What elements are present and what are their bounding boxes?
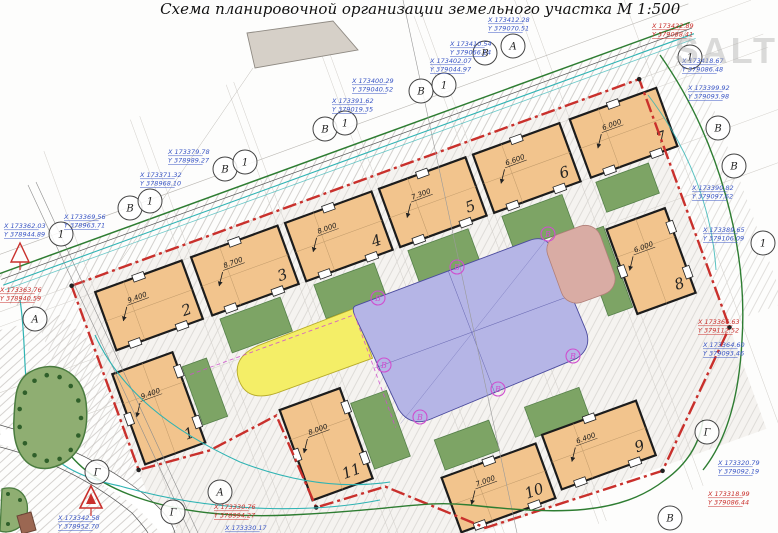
svg-text:Y 378994.27: Y 378994.27 <box>214 512 256 520</box>
svg-text:А: А <box>508 42 517 53</box>
svg-text:А: А <box>215 488 224 499</box>
tree-icon <box>6 522 10 526</box>
svg-text:В: В <box>416 413 423 422</box>
coordinate-label: X 173366.63Y 379112.52 <box>697 318 740 335</box>
svg-text:X 173400.29: X 173400.29 <box>351 77 394 85</box>
axis-marker: В <box>658 506 682 530</box>
axis-marker: Г <box>85 460 109 484</box>
tree-icon <box>57 375 62 380</box>
axis-marker: А <box>23 307 47 331</box>
svg-text:Y 379066.14: Y 379066.14 <box>450 49 491 57</box>
svg-text:В: В <box>416 87 424 98</box>
svg-text:Y 378944.89: Y 378944.89 <box>4 231 45 239</box>
coordinate-label: X 173402.07Y 379044.97 <box>429 57 473 74</box>
tree-icon <box>76 433 81 438</box>
axis-marker: 1 <box>233 150 257 174</box>
svg-text:Y 379112.52: Y 379112.52 <box>698 327 739 335</box>
svg-text:Y 379044.97: Y 379044.97 <box>430 66 472 74</box>
svg-text:В: В <box>374 294 381 303</box>
coordinate-label: X 173318.99Y 379086.44 <box>707 490 750 507</box>
axis-marker: 1 <box>333 111 357 135</box>
svg-text:В: В <box>125 204 133 215</box>
tree-icon <box>23 390 28 395</box>
svg-text:В: В <box>729 162 737 173</box>
coordinate-label: X 173364.60Y 379093.46 <box>702 341 745 358</box>
coordinate-label: X 173320.79Y 379092.19 <box>717 459 760 476</box>
coordinate-label: X 173379.78Y 378989.27 <box>167 148 210 165</box>
svg-text:Y 378963.71: Y 378963.71 <box>64 222 105 230</box>
tree-icon <box>23 441 28 446</box>
svg-text:X 173422.89: X 173422.89 <box>651 22 694 30</box>
tree-icon <box>18 498 22 502</box>
svg-text:Y 378968.10: Y 378968.10 <box>140 180 181 188</box>
svg-text:Y 378940.59: Y 378940.59 <box>0 295 41 303</box>
tree-icon <box>76 398 81 403</box>
coordinate-label: X 173371.32Y 378968.10 <box>139 171 182 188</box>
svg-text:Y 379086.44: Y 379086.44 <box>708 499 749 507</box>
svg-text:X 173342.58: X 173342.58 <box>57 514 100 522</box>
svg-text:X 173389.65: X 173389.65 <box>702 226 745 234</box>
svg-text:1: 1 <box>342 119 348 130</box>
svg-text:Y 378952.70: Y 378952.70 <box>58 523 99 531</box>
svg-text:В: В <box>665 514 673 525</box>
svg-text:X 173371.32: X 173371.32 <box>139 171 182 179</box>
svg-text:В: В <box>494 385 501 394</box>
coordinate-label: X 173342.58Y 378952.70 <box>57 514 100 531</box>
svg-text:X 173364.60: X 173364.60 <box>702 341 745 349</box>
svg-text:Y 379019.35: Y 379019.35 <box>332 106 373 114</box>
svg-text:Y 378989.27: Y 378989.27 <box>168 157 210 165</box>
axis-marker: В <box>706 116 730 140</box>
coordinate-label: X 173363.76Y 378940.59 <box>0 286 42 303</box>
svg-text:Y 379040.52: Y 379040.52 <box>352 86 393 94</box>
svg-text:А: А <box>30 315 39 326</box>
coordinate-label: X 173412.28Y 379070.51 <box>487 16 530 33</box>
svg-text:В: В <box>453 263 460 272</box>
svg-text:X 173330.17: X 173330.17 <box>224 524 268 532</box>
tree-icon <box>68 448 73 453</box>
coordinate-label: X 173362.03Y 378944.89 <box>3 222 46 239</box>
svg-text:X 173390.82: X 173390.82 <box>691 184 734 192</box>
svg-text:В: В <box>380 361 387 370</box>
tree-icon <box>32 378 37 383</box>
svg-text:X 173362.03: X 173362.03 <box>3 222 46 230</box>
svg-text:В: В <box>569 352 576 361</box>
coordinate-label: X 173330.76Y 378994.27 <box>213 503 256 520</box>
svg-text:X 173410.54: X 173410.54 <box>449 40 492 48</box>
tree-icon <box>44 458 49 463</box>
svg-text:Y 379106.09: Y 379106.09 <box>703 235 744 243</box>
axis-marker: 1 <box>432 73 456 97</box>
svg-text:Y 379070.51: Y 379070.51 <box>488 25 529 33</box>
svg-text:В: В <box>320 125 328 136</box>
svg-text:В: В <box>220 165 228 176</box>
coordinate-label: X 173400.29Y 379040.52 <box>351 77 394 94</box>
svg-text:X 173363.76: X 173363.76 <box>0 286 42 294</box>
drawing-sheet: Схема планировочной организации земельно… <box>0 0 778 533</box>
svg-text:В: В <box>713 124 721 135</box>
svg-text:X 173320.79: X 173320.79 <box>717 459 760 467</box>
axis-marker: Г <box>161 500 185 524</box>
svg-text:Y 379093.46: Y 379093.46 <box>703 350 744 358</box>
site-plan-svg: 9.40019.40028.70038.00047.30056.60066.00… <box>0 0 778 533</box>
svg-text:1: 1 <box>760 239 766 250</box>
svg-text:Г: Г <box>703 428 711 439</box>
tree-icon <box>17 425 22 430</box>
tree-icon <box>17 407 22 412</box>
svg-text:Y 379093.98: Y 379093.98 <box>688 93 729 101</box>
svg-text:1: 1 <box>58 230 64 241</box>
axis-marker: А <box>208 480 232 504</box>
svg-text:X 173402.07: X 173402.07 <box>429 57 473 65</box>
coordinate-label: X 173390.82Y 379097.62 <box>691 184 734 201</box>
axis-marker: А <box>501 34 525 58</box>
svg-text:X 173318.99: X 173318.99 <box>707 490 750 498</box>
existing-building <box>247 21 358 68</box>
coordinate-label: X 173399.92Y 379093.98 <box>687 84 730 101</box>
svg-text:X 173330.76: X 173330.76 <box>213 503 256 511</box>
svg-text:X 173379.78: X 173379.78 <box>167 148 210 156</box>
axis-marker: В <box>409 79 433 103</box>
axis-marker: 1 <box>138 189 162 213</box>
tree-icon <box>57 457 62 462</box>
tree-icon <box>6 492 10 496</box>
svg-text:X 173366.63: X 173366.63 <box>697 318 740 326</box>
plan-title: Схема планировочной организации земельно… <box>160 0 680 18</box>
tree-icon <box>44 373 49 378</box>
coordinate-label: X 173330.17 <box>224 524 268 532</box>
tree-icon <box>32 453 37 458</box>
svg-text:X 173399.92: X 173399.92 <box>687 84 730 92</box>
axis-marker: Г <box>695 420 719 444</box>
svg-text:X 173391.62: X 173391.62 <box>331 97 374 105</box>
svg-text:1: 1 <box>242 158 248 169</box>
axis-marker: В <box>722 154 746 178</box>
svg-text:Г: Г <box>169 508 177 519</box>
svg-text:1: 1 <box>147 197 153 208</box>
coordinate-label: X 173389.65Y 379106.09 <box>702 226 745 243</box>
svg-text:В: В <box>544 230 551 239</box>
coordinate-label: X 173369.56Y 378963.71 <box>63 213 106 230</box>
coordinate-label: X 173391.62Y 379019.35 <box>331 97 374 114</box>
watermark: SALT <box>675 30 778 72</box>
coordinate-label: X 173410.54Y 379066.14 <box>449 40 492 57</box>
svg-text:X 173369.56: X 173369.56 <box>63 213 106 221</box>
tree-icon <box>79 416 84 421</box>
svg-text:Y 379097.62: Y 379097.62 <box>692 193 733 201</box>
svg-text:1: 1 <box>441 81 447 92</box>
svg-text:Г: Г <box>93 468 101 479</box>
axis-marker: 1 <box>751 231 775 255</box>
tree-icon <box>68 384 73 389</box>
svg-text:Y 379092.19: Y 379092.19 <box>718 468 759 476</box>
